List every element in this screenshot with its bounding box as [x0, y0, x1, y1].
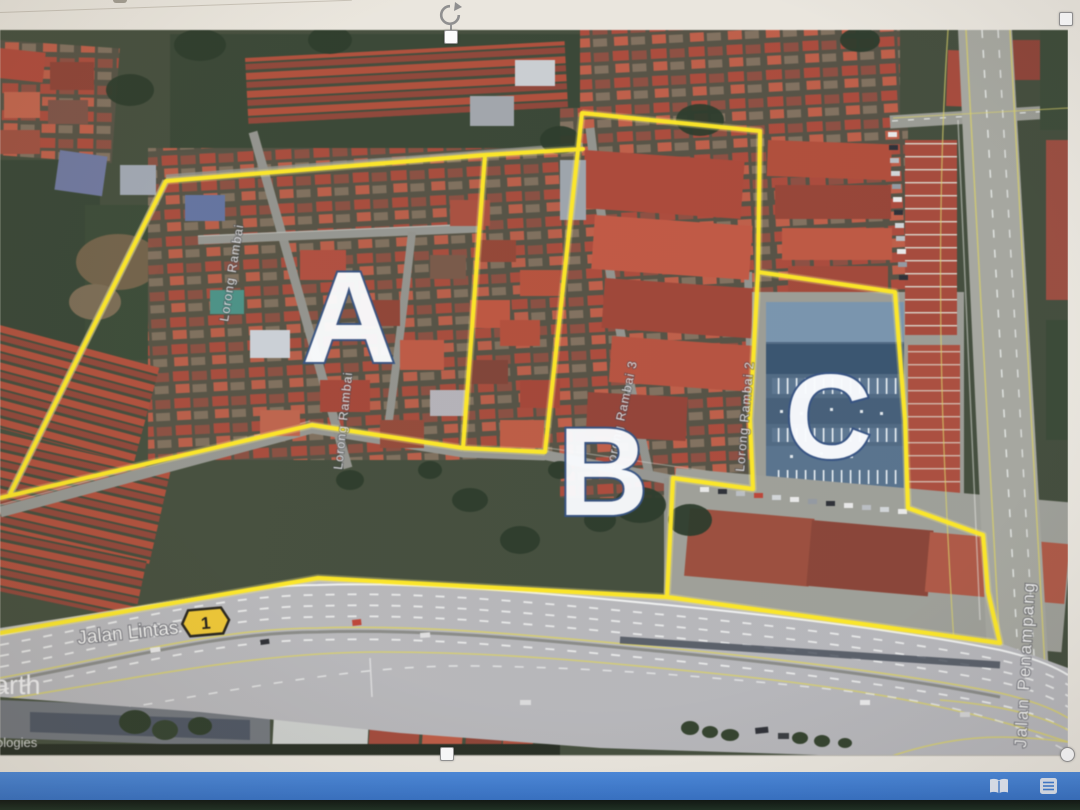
google-earth-watermark-fragment: arth: [0, 670, 41, 700]
slide-edge-line: [0, 0, 352, 13]
resize-handle-top-middle[interactable]: [444, 30, 458, 44]
route-shield-number: 1: [200, 614, 211, 634]
satellite-map: Lorong Rambai Lorong Rambai Lorong Ramba…: [0, 30, 1068, 755]
status-bar: [0, 772, 1080, 800]
imagery-credit-fragment: ologies: [0, 735, 38, 750]
zone-label-b: B: [558, 403, 648, 542]
book-open-view-icon[interactable]: [987, 778, 1011, 795]
screen-bezel: [0, 800, 1080, 810]
resize-handle-top-right[interactable]: [1059, 12, 1073, 26]
zone-label-a: A: [302, 244, 396, 390]
satellite-map-image[interactable]: Lorong Rambai Lorong Rambai Lorong Ramba…: [0, 30, 1068, 756]
grid-view-icon[interactable]: [1039, 777, 1058, 795]
photographed-screen: Lorong Rambai Lorong Rambai Lorong Ramba…: [0, 0, 1080, 810]
zone-label-c: C: [785, 350, 872, 484]
photo-smudge: [113, 0, 127, 3]
route-shield: 1: [181, 607, 230, 637]
resize-handle-bottom-right[interactable]: [1060, 747, 1075, 762]
slide-right-margin: [1068, 0, 1080, 772]
resize-handle-bottom-middle[interactable]: [440, 747, 454, 761]
